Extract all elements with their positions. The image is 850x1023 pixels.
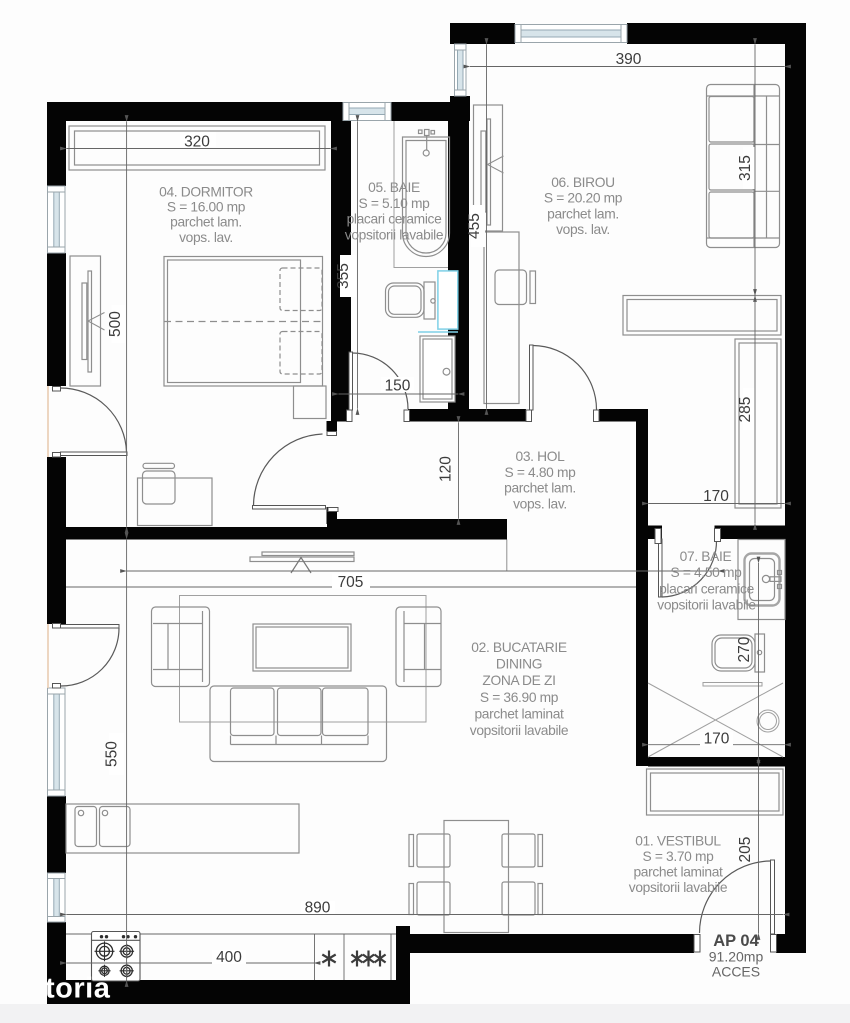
svg-text:890: 890 bbox=[305, 900, 331, 917]
svg-text:DINING: DINING bbox=[496, 657, 542, 672]
svg-text:02. BUCATARIE: 02. BUCATARIE bbox=[471, 640, 567, 655]
svg-text:S = 3.70 mp: S = 3.70 mp bbox=[643, 849, 715, 864]
svg-text:705: 705 bbox=[338, 574, 364, 591]
svg-text:parchet laminat: parchet laminat bbox=[474, 706, 564, 721]
svg-text:355: 355 bbox=[335, 263, 352, 289]
svg-text:500: 500 bbox=[107, 311, 124, 337]
svg-text:04. DORMITOR: 04. DORMITOR bbox=[159, 184, 253, 199]
svg-text:S = 20.20 mp: S = 20.20 mp bbox=[544, 191, 623, 206]
svg-text:parchet lam.: parchet lam. bbox=[170, 215, 242, 230]
svg-text:390: 390 bbox=[616, 51, 642, 68]
svg-text:400: 400 bbox=[216, 949, 242, 966]
svg-text:vops. lav.: vops. lav. bbox=[513, 496, 567, 511]
svg-text:S = 4.50 mp: S = 4.50 mp bbox=[671, 565, 743, 580]
svg-text:S = 5.10 mp: S = 5.10 mp bbox=[359, 196, 431, 211]
svg-text:06. BIROU: 06. BIROU bbox=[551, 175, 615, 190]
svg-text:170: 170 bbox=[704, 731, 730, 748]
svg-text:05. BAIE: 05. BAIE bbox=[368, 180, 420, 195]
svg-text:315: 315 bbox=[737, 155, 754, 181]
svg-text:07. BAIE: 07. BAIE bbox=[680, 549, 732, 564]
svg-text:ZONA DE ZI: ZONA DE ZI bbox=[482, 673, 555, 688]
svg-text:320: 320 bbox=[184, 134, 210, 151]
svg-text:toria: toria bbox=[45, 973, 111, 1005]
svg-text:placari ceramice: placari ceramice bbox=[347, 212, 443, 227]
svg-text:vopsitorii lavabile: vopsitorii lavabile bbox=[629, 880, 728, 895]
svg-text:ACCES: ACCES bbox=[712, 964, 760, 980]
svg-text:170: 170 bbox=[703, 488, 729, 505]
svg-text:91.20mp: 91.20mp bbox=[709, 949, 764, 965]
svg-text:03. HOL: 03. HOL bbox=[516, 449, 566, 464]
svg-text:270: 270 bbox=[736, 636, 753, 662]
svg-text:285: 285 bbox=[737, 397, 754, 423]
svg-text:S = 36.90 mp: S = 36.90 mp bbox=[480, 690, 559, 705]
svg-text:550: 550 bbox=[104, 741, 121, 767]
svg-text:150: 150 bbox=[385, 378, 411, 395]
svg-text:AP 04: AP 04 bbox=[713, 932, 759, 950]
svg-text:455: 455 bbox=[466, 213, 483, 239]
svg-text:vops. lav.: vops. lav. bbox=[556, 222, 610, 237]
svg-text:120: 120 bbox=[438, 456, 455, 482]
svg-text:S = 4.80 mp: S = 4.80 mp bbox=[505, 465, 577, 480]
svg-text:vopsitorii lavabile: vopsitorii lavabile bbox=[657, 598, 756, 613]
svg-text:205: 205 bbox=[737, 837, 754, 863]
svg-text:parchet lam.: parchet lam. bbox=[504, 481, 576, 496]
svg-text:parchet laminat: parchet laminat bbox=[633, 865, 723, 880]
svg-text:vopsitorii lavabile: vopsitorii lavabile bbox=[470, 723, 569, 738]
svg-text:vopsitorii lavabile: vopsitorii lavabile bbox=[345, 227, 444, 242]
svg-text:parchet lam.: parchet lam. bbox=[547, 206, 619, 221]
svg-text:placari ceramice: placari ceramice bbox=[659, 581, 755, 596]
svg-text:S = 16.00 mp: S = 16.00 mp bbox=[167, 200, 246, 215]
svg-text:01. VESTIBUL: 01. VESTIBUL bbox=[635, 834, 721, 849]
svg-text:vops. lav.: vops. lav. bbox=[179, 230, 233, 245]
